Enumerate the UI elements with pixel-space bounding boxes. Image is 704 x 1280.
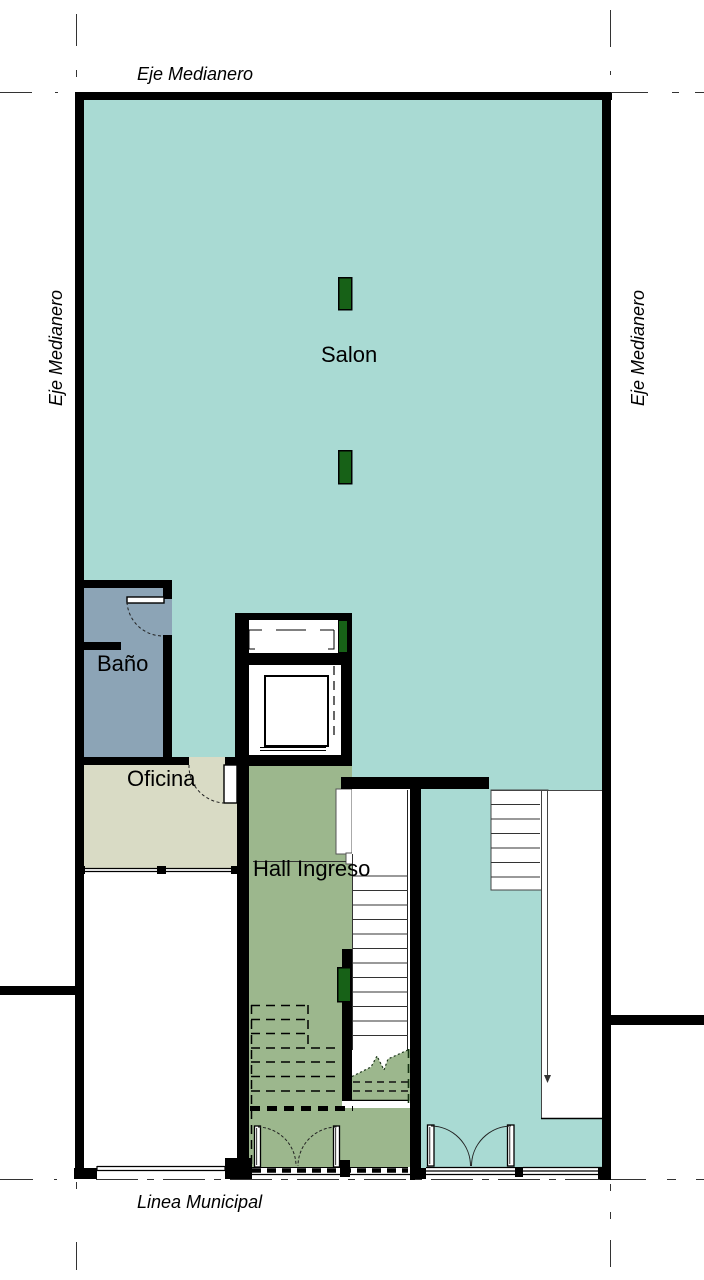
svg-text:Linea Municipal: Linea Municipal <box>137 1192 263 1212</box>
svg-text:Eje Medianero: Eje Medianero <box>628 290 648 406</box>
svg-text:Eje Medianero: Eje Medianero <box>137 64 253 84</box>
svg-text:Eje Medianero: Eje Medianero <box>46 290 66 406</box>
svg-text:Salon: Salon <box>321 342 377 367</box>
svg-text:Baño: Baño <box>97 651 148 676</box>
svg-text:Hall Ingreso: Hall Ingreso <box>253 856 370 881</box>
svg-text:Oficina: Oficina <box>127 766 196 791</box>
